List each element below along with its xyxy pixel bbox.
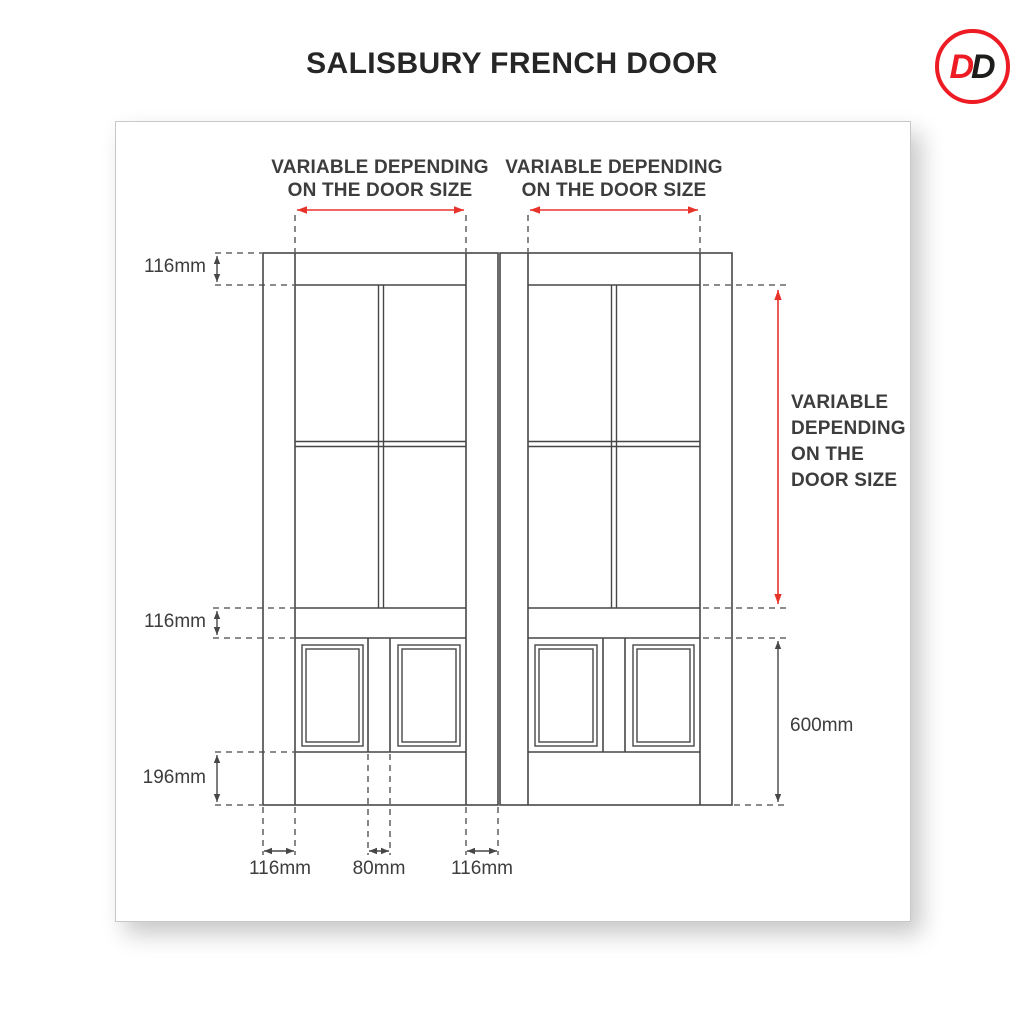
dim-label-center-muntin: 80mm: [353, 859, 406, 880]
variable-height-label: VARIABLE DEPENDING ON THE DOOR SIZE: [791, 390, 906, 494]
dim-label-mid-rail: 116mm: [144, 612, 206, 633]
variable-height-label-line1: VARIABLE: [791, 390, 906, 416]
variable-width-label-left: VARIABLE DEPENDING ON THE DOOR SIZE: [271, 156, 489, 202]
dim-label-bottom-rail: 196mm: [143, 768, 206, 789]
variable-height-label-line3: ON THE: [791, 442, 906, 468]
variable-width-label-right-line2: ON THE DOOR SIZE: [505, 179, 723, 202]
dim-label-bottom-section: 600mm: [790, 716, 853, 737]
dim-label-left-stile: 116mm: [249, 859, 311, 880]
variable-height-label-line2: DEPENDING: [791, 416, 906, 442]
variable-width-label-left-line1: VARIABLE DEPENDING: [271, 156, 489, 179]
variable-width-label-right-line1: VARIABLE DEPENDING: [505, 156, 723, 179]
dim-label-meeting-stile: 116mm: [451, 859, 513, 880]
dim-label-top-rail: 116mm: [144, 257, 206, 278]
variable-width-label-right: VARIABLE DEPENDING ON THE DOOR SIZE: [505, 156, 723, 202]
variable-width-label-left-line2: ON THE DOOR SIZE: [271, 179, 489, 202]
variable-height-label-line4: DOOR SIZE: [791, 468, 906, 494]
